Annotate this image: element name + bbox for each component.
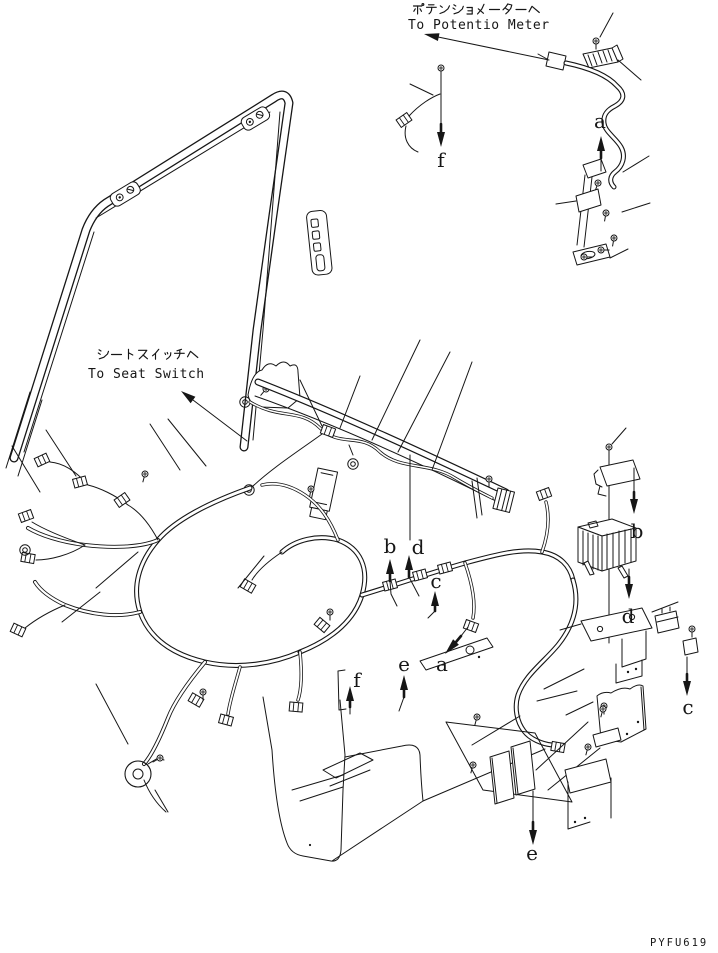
top-wire-group [396,65,444,152]
seat-switch-arrow-icon [181,391,195,403]
callout-f-center: f [346,668,362,714]
svg-text:a: a [436,652,448,676]
callout-a-center: a [436,627,468,676]
callout-b-center: b [384,534,397,606]
potentio-annotation-jp [414,4,540,14]
dash-end-connector [493,488,515,512]
svg-text:f: f [353,668,362,692]
svg-text:d: d [622,604,635,628]
svg-text:f: f [437,148,446,172]
cab-frame [6,95,333,476]
potentio-annotation: To Potentio Meter [408,4,550,60]
hinge-plate-upper-left [108,180,142,208]
svg-text:b: b [631,519,644,543]
seat-switch-annotation: To Seat Switch [88,349,247,441]
callout-c-center: c [428,569,442,618]
callout-f-top: f [437,76,446,172]
parts-diagram-page: To Potentio Meter To Seat Switch f a b [0,0,718,953]
svg-text:a: a [594,109,606,133]
diagram-canvas: To Potentio Meter To Seat Switch f a b [0,0,718,953]
potentio-arrow-icon [424,33,440,41]
latch-plate [306,210,333,276]
svg-text:e: e [398,652,410,676]
part-code: PYFU619 [650,937,708,949]
svg-text:c: c [430,569,441,593]
svg-text:b: b [384,534,397,558]
svg-text:d: d [412,535,425,559]
potentio-annotation-en: To Potentio Meter [408,18,550,33]
callout-e-bottom: e [526,791,538,865]
potentio-cable-assembly [538,13,650,265]
seat-annotation-en: To Seat Switch [88,367,205,382]
svg-text:e: e [526,841,538,865]
relay-bracket-assembly [537,428,698,742]
callout-e-center: e [398,652,410,711]
leader-lines [12,340,609,812]
seat-annotation-jp [98,349,198,359]
callout-d-center: d [405,535,425,596]
svg-text:c: c [682,695,693,719]
callout-c-right: c [682,657,693,719]
